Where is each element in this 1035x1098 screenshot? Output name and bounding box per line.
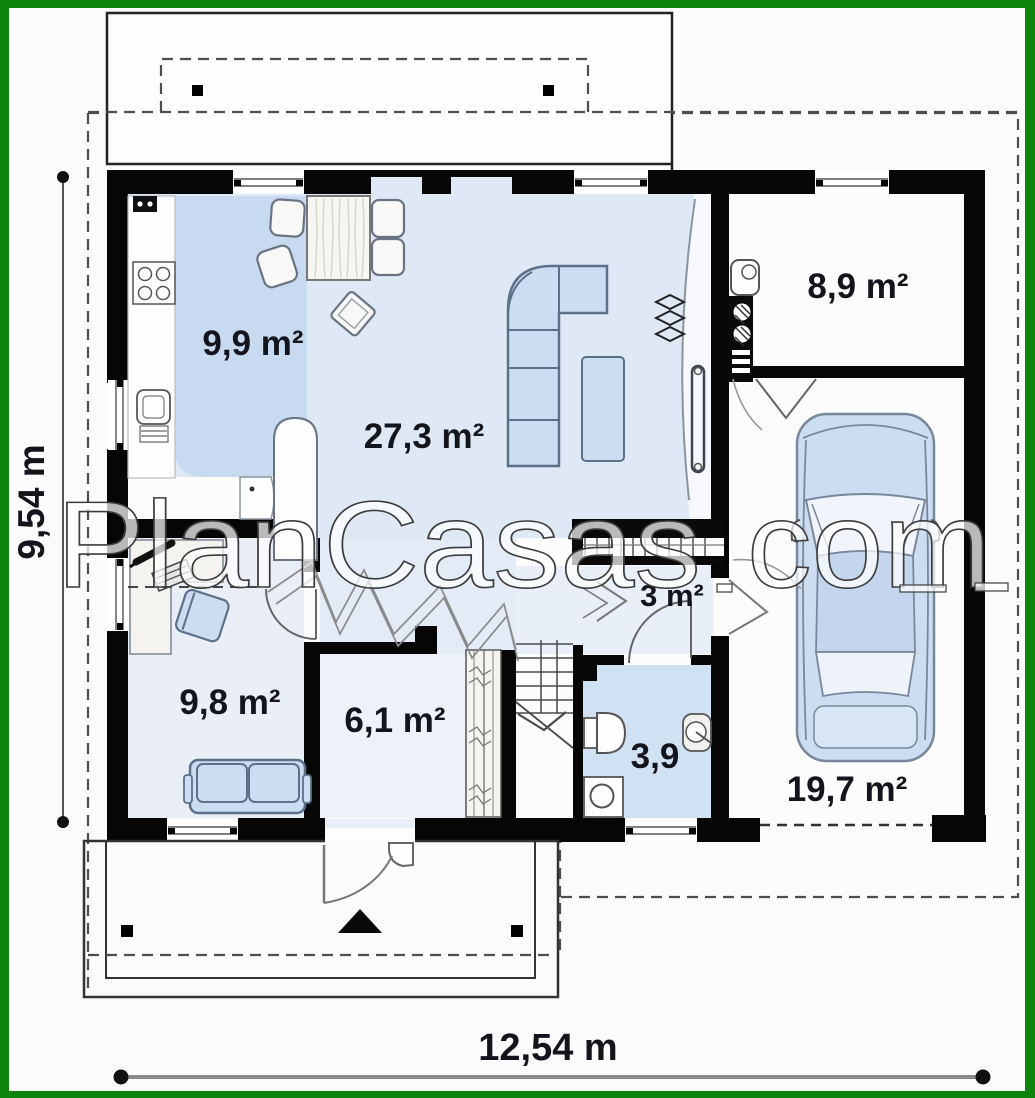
svg-text:9,8 m²: 9,8 m² (179, 683, 280, 722)
svg-text:9,9 m²: 9,9 m² (202, 324, 303, 363)
svg-text:PlanCasas: PlanCasas (56, 477, 701, 614)
svg-text:6,1 m²: 6,1 m² (344, 701, 445, 740)
svg-text:27,3 m²: 27,3 m² (364, 417, 485, 456)
svg-text:8,9 m²: 8,9 m² (807, 267, 908, 306)
svg-text:com: com (747, 477, 991, 614)
svg-text:12,54 m: 12,54 m (478, 1027, 617, 1069)
svg-text:19,7 m²: 19,7 m² (787, 770, 908, 809)
svg-text:3,9: 3,9 (631, 737, 680, 776)
svg-text:9,54 m: 9,54 m (11, 444, 52, 559)
